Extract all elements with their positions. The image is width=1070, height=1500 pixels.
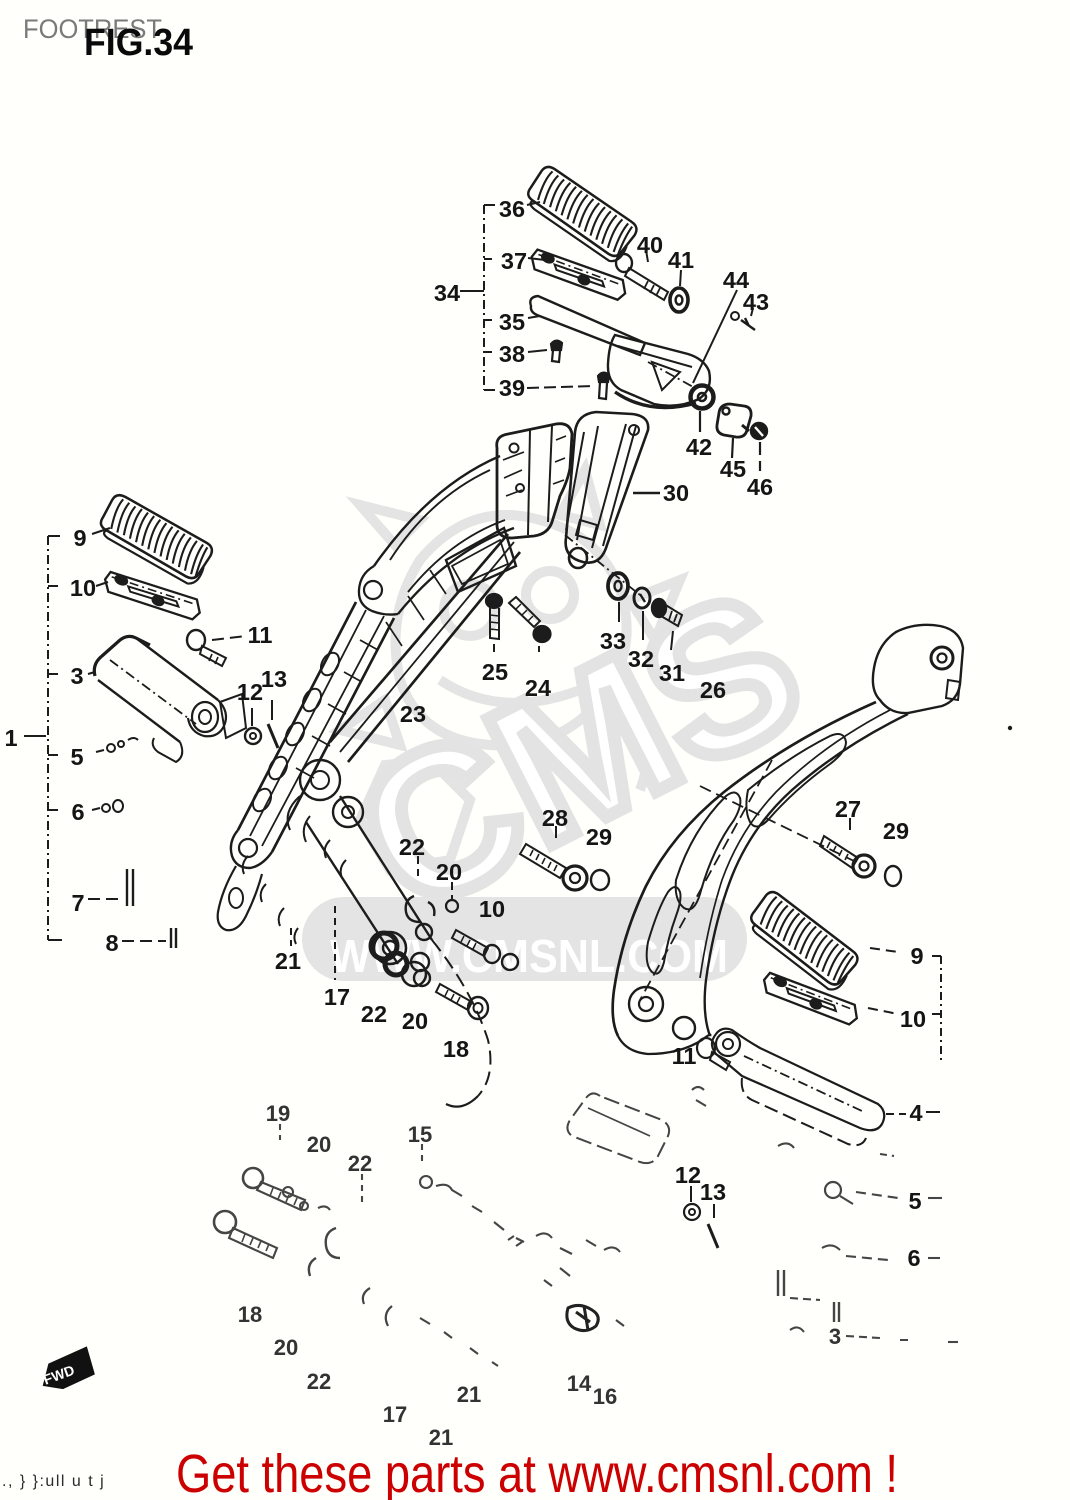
svg-text:24: 24 (525, 675, 551, 701)
svg-text:5: 5 (908, 1188, 921, 1214)
svg-text:39: 39 (499, 375, 525, 401)
svg-text:42: 42 (686, 434, 712, 460)
svg-text:Get these parts at www.cmsnl.c: Get these parts at www.cmsnl.com ! (176, 1444, 898, 1500)
svg-text:6: 6 (71, 799, 84, 825)
svg-text:12: 12 (237, 679, 263, 705)
svg-text:11: 11 (248, 622, 273, 648)
svg-text:29: 29 (586, 824, 612, 850)
svg-text:7: 7 (71, 890, 84, 916)
svg-text:11: 11 (672, 1043, 697, 1069)
svg-text:13: 13 (700, 1179, 726, 1205)
svg-text:29: 29 (883, 818, 909, 844)
svg-text:20: 20 (307, 1132, 331, 1157)
svg-text:13: 13 (261, 666, 287, 692)
svg-text:12: 12 (675, 1162, 701, 1188)
svg-text:36: 36 (499, 196, 525, 222)
svg-text:., } }:ull u t j: ., } }:ull u t j (2, 1473, 105, 1490)
svg-text:4: 4 (909, 1100, 922, 1126)
svg-text:35: 35 (499, 309, 525, 335)
svg-text:18: 18 (238, 1302, 262, 1327)
svg-text:19: 19 (266, 1101, 290, 1126)
svg-text:6: 6 (907, 1245, 920, 1271)
svg-text:40: 40 (637, 232, 663, 258)
svg-text:45: 45 (720, 456, 746, 482)
svg-text:34: 34 (434, 280, 460, 306)
svg-text:18: 18 (443, 1036, 469, 1062)
svg-text:10: 10 (70, 575, 96, 601)
svg-text:10: 10 (900, 1006, 926, 1032)
svg-text:41: 41 (668, 247, 694, 273)
svg-text:3: 3 (70, 663, 83, 689)
svg-text:28: 28 (542, 805, 568, 831)
svg-text:16: 16 (593, 1384, 617, 1409)
svg-text:20: 20 (402, 1008, 428, 1034)
svg-text:17: 17 (383, 1402, 407, 1427)
svg-text:20: 20 (274, 1335, 298, 1360)
svg-text:FIG.34: FIG.34 (84, 22, 193, 64)
svg-text:21: 21 (275, 948, 301, 974)
svg-text:25: 25 (482, 659, 508, 685)
svg-text:5: 5 (70, 744, 83, 770)
svg-text:15: 15 (408, 1122, 432, 1147)
svg-text:31: 31 (659, 660, 685, 686)
svg-text:38: 38 (499, 341, 525, 367)
svg-text:20: 20 (436, 859, 462, 885)
svg-text:37: 37 (501, 248, 527, 274)
svg-text:10: 10 (479, 896, 505, 922)
svg-text:22: 22 (348, 1151, 372, 1176)
svg-text:3: 3 (829, 1324, 841, 1349)
svg-text:9: 9 (910, 943, 923, 969)
svg-text:14: 14 (567, 1371, 592, 1396)
svg-text:23: 23 (400, 701, 426, 727)
svg-text:43: 43 (743, 289, 769, 315)
svg-text:22: 22 (307, 1369, 331, 1394)
svg-text:33: 33 (600, 628, 626, 654)
svg-text:46: 46 (747, 474, 773, 500)
svg-text:32: 32 (628, 646, 654, 672)
svg-text:8: 8 (105, 930, 118, 956)
svg-text:22: 22 (399, 834, 425, 860)
svg-text:27: 27 (835, 796, 861, 822)
svg-text:22: 22 (361, 1001, 387, 1027)
svg-text:21: 21 (457, 1382, 481, 1407)
svg-text:30: 30 (663, 480, 689, 506)
svg-text:26: 26 (700, 677, 726, 703)
svg-text:9: 9 (73, 525, 86, 551)
svg-text:1: 1 (4, 725, 17, 751)
svg-text:17: 17 (324, 984, 350, 1010)
